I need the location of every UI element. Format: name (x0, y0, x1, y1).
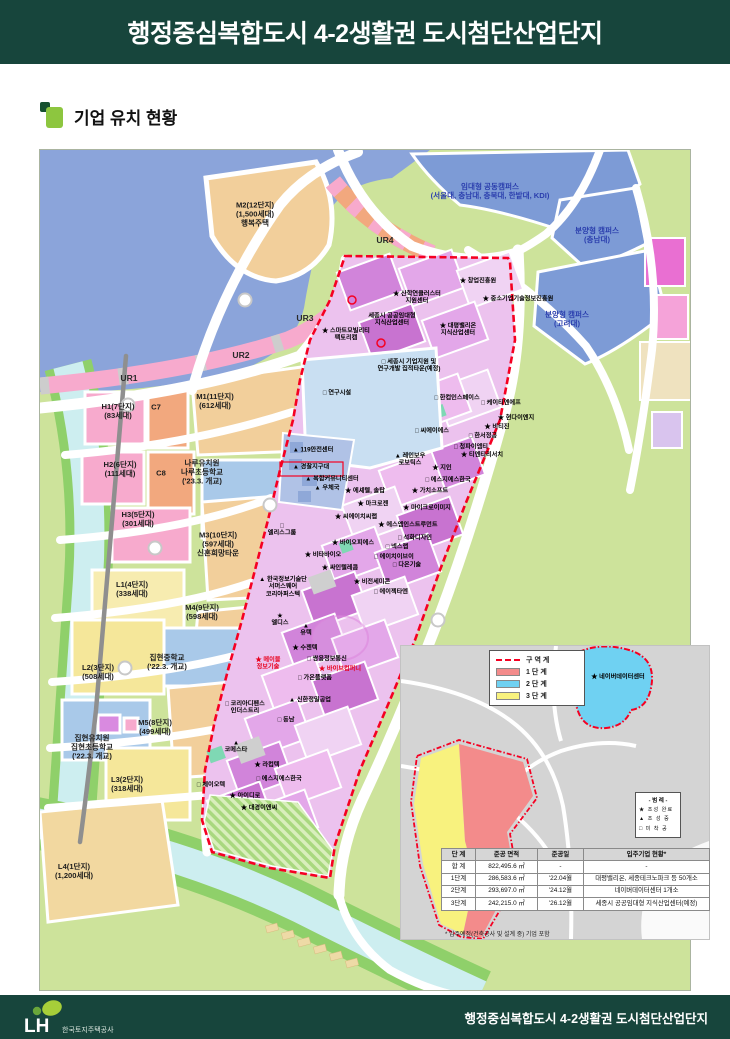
inset-table-row: 1단계286,583.6 ㎡'22.04월대평밸리온, 세종테크노파크 등 50… (442, 873, 710, 885)
inset-table-cell: 286,583.6 ㎡ (476, 873, 538, 885)
inset-table-cell: - (538, 861, 584, 873)
lh-logo-subtext: 한국토지주택공사 (62, 1025, 114, 1034)
section-title: 기업 유치 현황 (74, 104, 177, 129)
zone-legend-label: 구역계 (526, 655, 551, 665)
zone-legend-row: 3단계 (496, 690, 578, 702)
inset-table-header: 준공 면적 (476, 849, 538, 861)
phase3-swatch (496, 692, 520, 700)
inset-table-cell: 합 계 (442, 861, 476, 873)
community-block (279, 433, 354, 510)
inset-table-cell: 세종시 공공임대형 지식산업센터(예정) (584, 898, 710, 910)
inset-table-cell: 293,697.0 ㎡ (476, 885, 538, 897)
zone-legend-row: 구역계 (496, 654, 578, 666)
lh-logo-text: LH (24, 1016, 49, 1036)
inset-table-cell: 3단계 (442, 898, 476, 910)
footer-title: 행정중심복합도시 4-2생활권 도시첨단산업단지 (464, 1008, 708, 1027)
marker-legend-title: - 범 례 - (639, 796, 677, 804)
inset-table-cell: 242,215.0 ㎡ (476, 898, 538, 910)
inset-table-header: 준공일 (538, 849, 584, 861)
watermark-stamp (312, 616, 368, 660)
phase1-swatch (496, 668, 520, 676)
inset-table-cell: 1단계 (442, 873, 476, 885)
inset-table-cell: 대평밸리온, 세종테크노파크 등 50개소 (584, 873, 710, 885)
marker-legend-item: ★ 조성 완료 (639, 806, 677, 815)
inset-marker-legend: - 범 례 - ★ 조성 완료 ▲ 조 성 중 □ 미 착 공 (635, 792, 681, 838)
lh-logo: LH 한국토지주택공사 (22, 998, 172, 1036)
zone-legend-row: 1단계 (496, 666, 578, 678)
inset-table-cell: '22.04월 (538, 873, 584, 885)
page-header: 행정중심복합도시 4-2생활권 도시첨단산업단지 (0, 0, 730, 64)
phase2-swatch (496, 680, 520, 688)
phase-summary-table: 단 계준공 면적준공일입주기업 현황* 합 계822,495.6 ㎡--1단계2… (441, 848, 710, 911)
inset-zone-legend: 구역계 1단계 2단계 3단계 (489, 650, 585, 706)
section-title-row: 기업 유치 현황 (40, 102, 177, 129)
bullet-green-square (46, 107, 63, 128)
inset-table-header: 입주기업 현황* (584, 849, 710, 861)
marker-legend-item: ▲ 조 성 중 (639, 815, 677, 824)
zone-legend-label: 3단계 (526, 691, 549, 701)
boundary-line-swatch (496, 659, 520, 661)
inset-table-header: 단 계 (442, 849, 476, 861)
inset-table-row: 3단계242,215.0 ㎡'26.12월세종시 공공임대형 지식산업센터(예정… (442, 898, 710, 910)
zone-legend-label: 2단계 (526, 679, 549, 689)
page: 행정중심복합도시 4-2생활권 도시첨단산업단지 기업 유치 현황 (0, 0, 730, 1039)
map: 구역계 1단계 2단계 3단계 - 범 례 - ★ 조성 완료 ▲ 조 (40, 150, 690, 990)
page-title: 행정중심복합도시 4-2생활권 도시첨단산업단지 (127, 14, 602, 50)
marker-legend-item: □ 미 착 공 (639, 825, 677, 834)
inset-table-header-row: 단 계준공 면적준공일입주기업 현황* (442, 849, 710, 861)
inset-table-row: 2단계293,697.0 ㎡'24.12월네이버데이터센터 1개소 (442, 885, 710, 897)
inset-table-row: 합 계822,495.6 ㎡-- (442, 861, 710, 873)
inset-table-cell: '24.12월 (538, 885, 584, 897)
inset-table-cell: 2단계 (442, 885, 476, 897)
section-bullet-icon (40, 102, 65, 129)
table-footnote: * 입주예정(건축공사 및 설계 중) 기업 포함 (445, 929, 550, 938)
zone-legend-label: 1단계 (526, 667, 549, 677)
inset-table-cell: 822,495.6 ㎡ (476, 861, 538, 873)
lh-logo-dot (33, 1007, 41, 1015)
inset-table-cell: - (584, 861, 710, 873)
inset-table-cell: 네이버데이터센터 1개소 (584, 885, 710, 897)
zone-legend-row: 2단계 (496, 678, 578, 690)
inset-panel: 구역계 1단계 2단계 3단계 - 범 례 - ★ 조성 완료 ▲ 조 (400, 645, 710, 940)
page-footer: LH 한국토지주택공사 행정중심복합도시 4-2생활권 도시첨단산업단지 (0, 995, 730, 1039)
inset-table-wrap: 단 계준공 면적준공일입주기업 현황* 합 계822,495.6 ㎡--1단계2… (441, 848, 710, 911)
inset-table-cell: '26.12월 (538, 898, 584, 910)
